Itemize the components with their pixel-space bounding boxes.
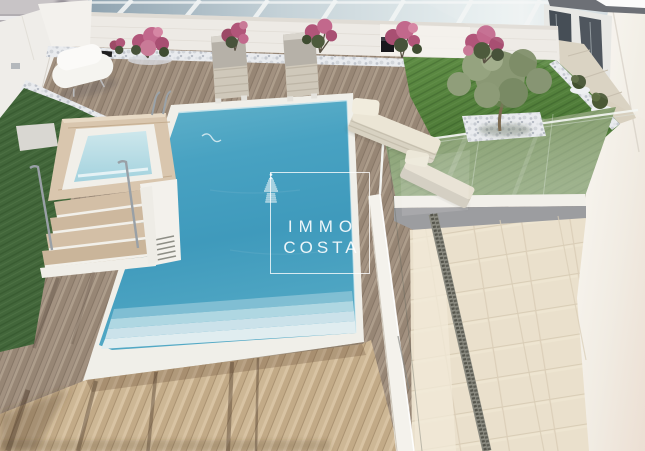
glass-haze xyxy=(400,150,470,216)
watermark-frame: IMMO COSTA xyxy=(270,172,370,274)
wall-light xyxy=(11,63,20,69)
concrete-pad xyxy=(16,123,58,151)
listing-photo: IMMO COSTA xyxy=(0,0,645,451)
lower-terrace xyxy=(394,194,589,451)
lighthouse-icon xyxy=(258,173,284,205)
watermark-text-line2: COSTA xyxy=(283,238,360,258)
watermark-text-line1: IMMO xyxy=(288,217,358,237)
